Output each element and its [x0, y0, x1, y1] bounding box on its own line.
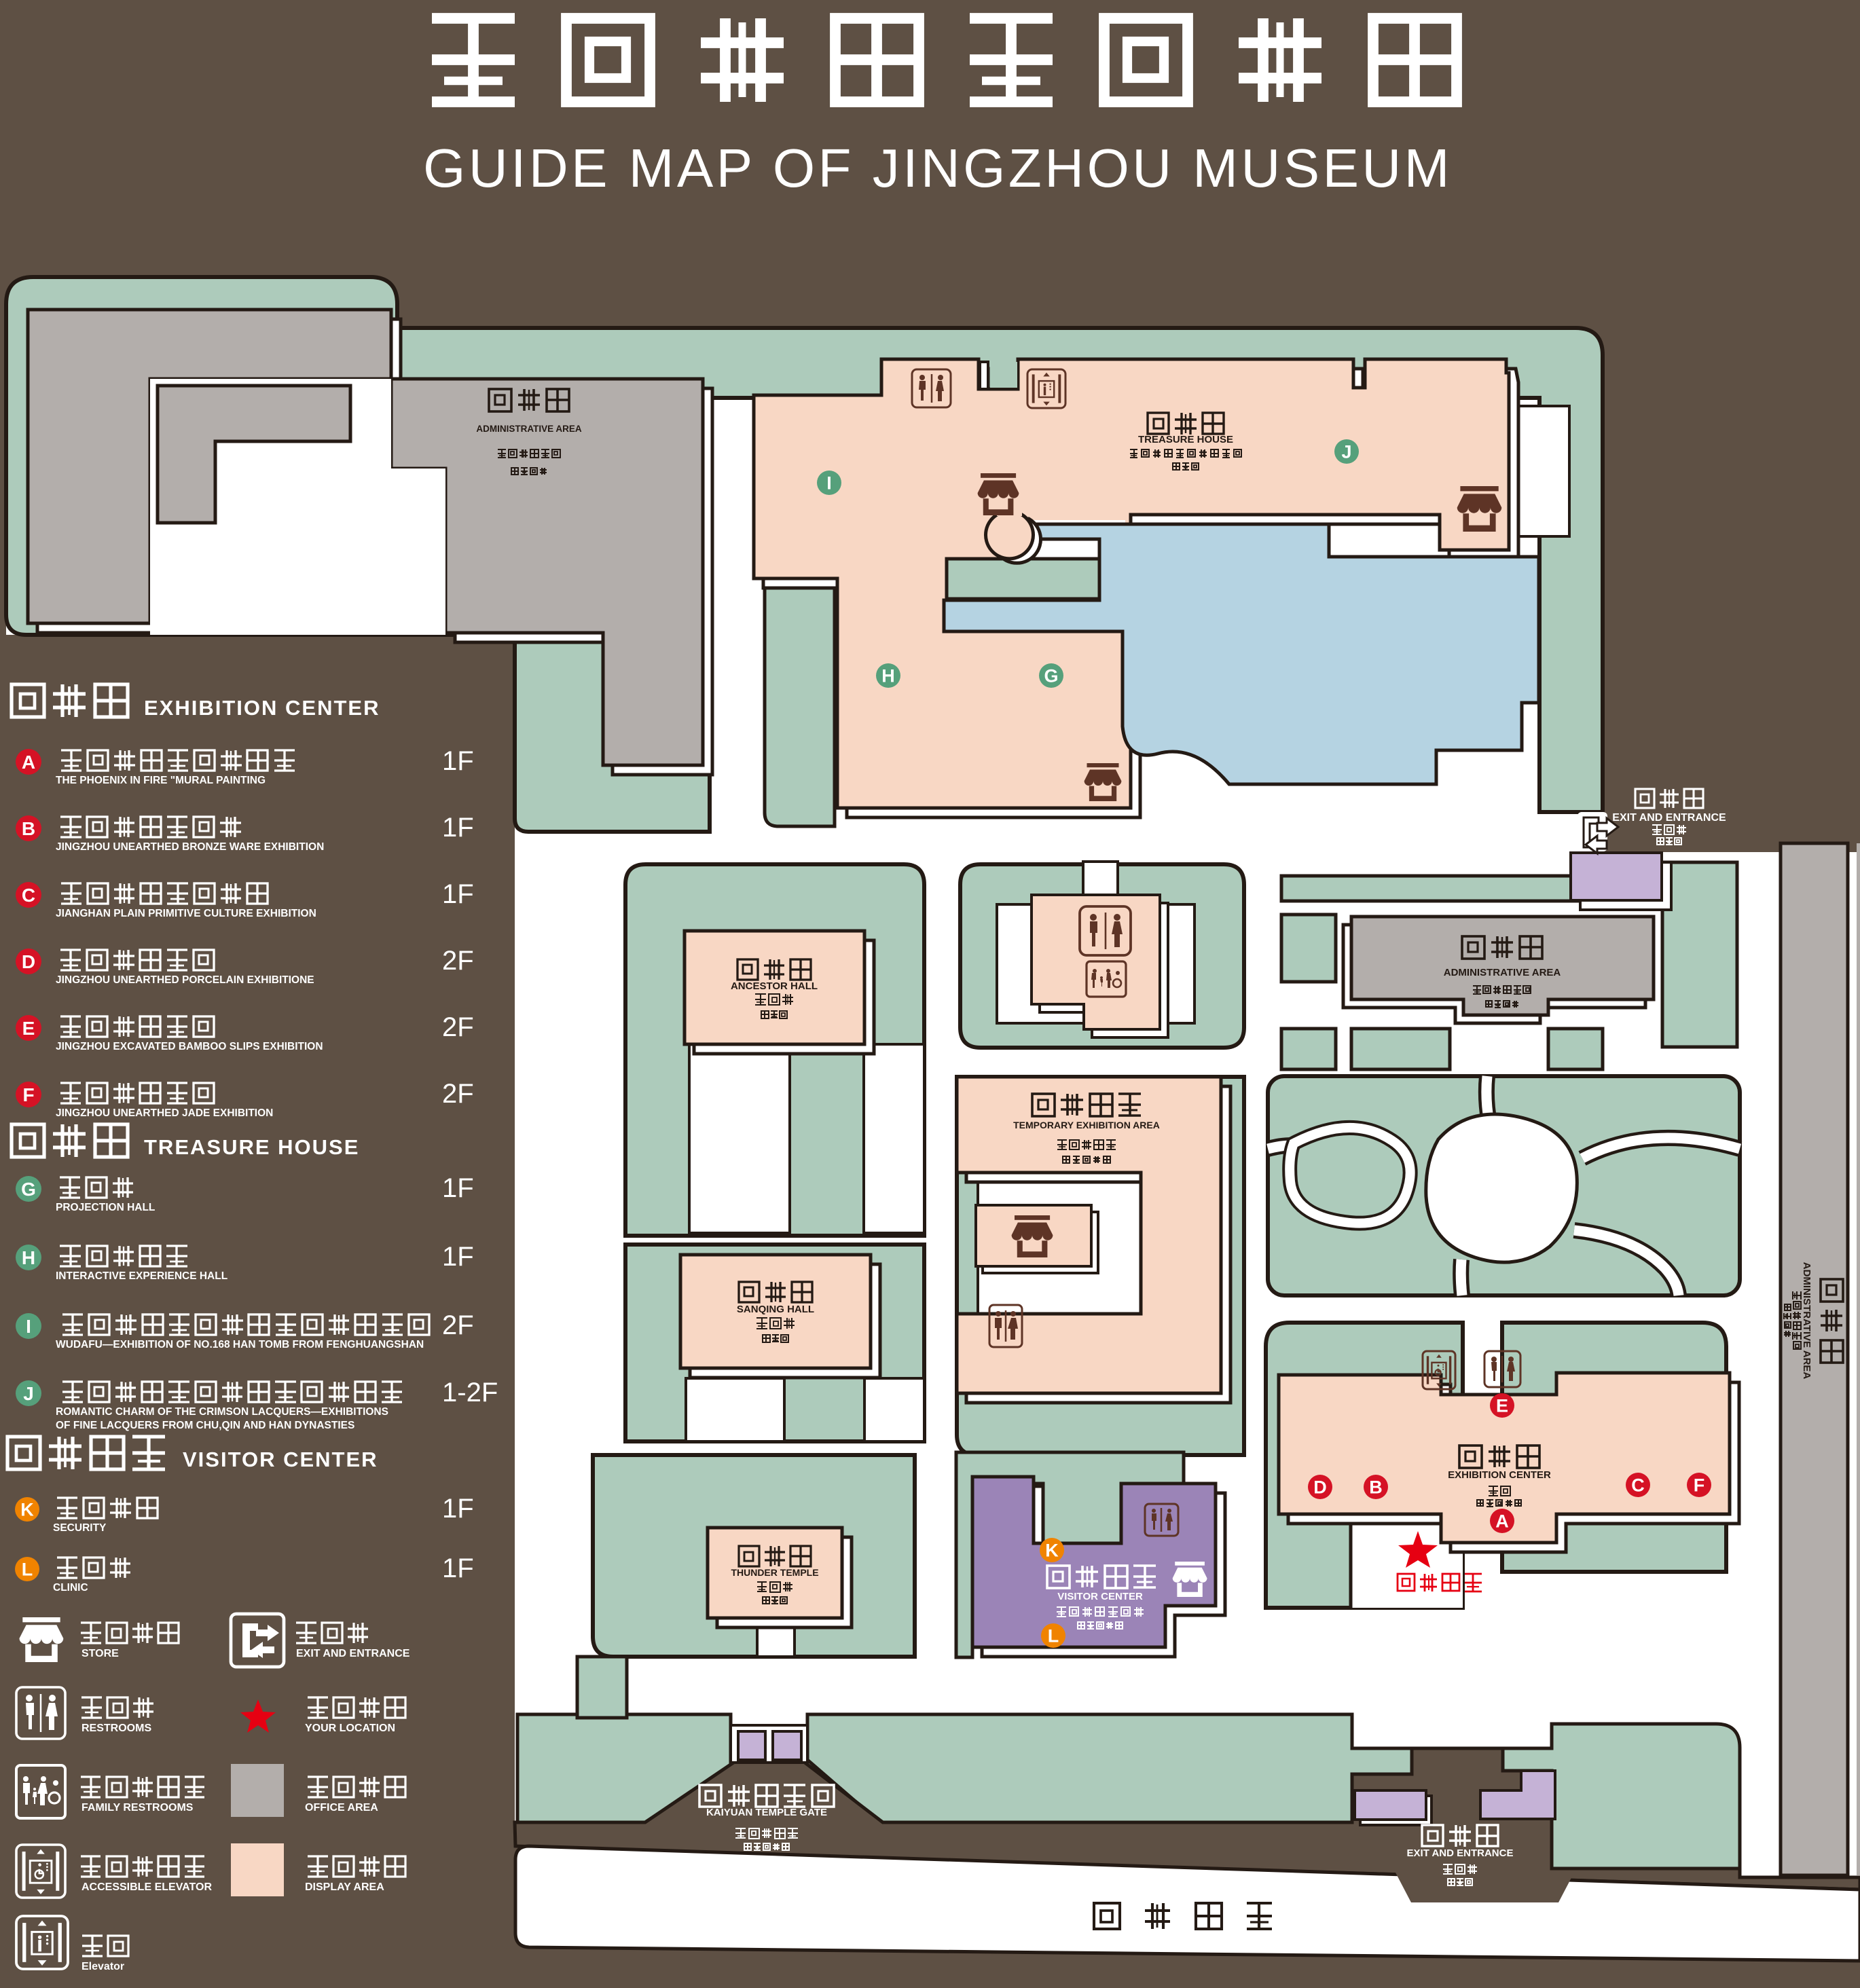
- svg-text:EXIT AND ENTRANCE: EXIT AND ENTRANCE: [296, 1648, 410, 1659]
- svg-text:VISITOR CENTER: VISITOR CENTER: [1057, 1591, 1143, 1602]
- svg-text:1F: 1F: [442, 879, 474, 909]
- svg-text:EXIT AND ENTRANCE: EXIT AND ENTRANCE: [1407, 1847, 1514, 1859]
- svg-text:1F: 1F: [442, 1553, 474, 1583]
- svg-text:VISITOR CENTER: VISITOR CENTER: [183, 1448, 378, 1471]
- svg-text:ADMINISTRATIVE AREA: ADMINISTRATIVE AREA: [1801, 1262, 1812, 1380]
- svg-text:L: L: [22, 1559, 33, 1579]
- svg-text:1F: 1F: [442, 1494, 474, 1524]
- svg-text:Elevator: Elevator: [81, 1961, 124, 1972]
- svg-text:PROJECTION HALL: PROJECTION HALL: [56, 1202, 155, 1213]
- svg-text:2F: 2F: [442, 1310, 474, 1340]
- svg-text:OF FINE LACQUERS FROM CHU,QIN: OF FINE LACQUERS FROM CHU,QIN AND HAN DY…: [56, 1420, 354, 1431]
- svg-text:1F: 1F: [442, 1173, 474, 1203]
- svg-text:YOUR LOCATION: YOUR LOCATION: [305, 1723, 395, 1734]
- svg-text:1F: 1F: [442, 746, 474, 776]
- svg-text:I: I: [26, 1316, 31, 1337]
- svg-text:A: A: [22, 752, 35, 773]
- svg-text:EXIT AND ENTRANCE: EXIT AND ENTRANCE: [1612, 812, 1726, 824]
- svg-text:OFFICE AREA: OFFICE AREA: [305, 1802, 378, 1814]
- svg-text:JINGZHOU UNEARTHED JADE EXHIBI: JINGZHOU UNEARTHED JADE EXHIBITION: [56, 1107, 273, 1119]
- svg-text:2F: 2F: [442, 946, 474, 976]
- svg-text:WUDAFU—EXHIBITION OF NO.168 HA: WUDAFU—EXHIBITION OF NO.168 HAN TOMB FRO…: [56, 1339, 424, 1350]
- svg-text:SECURITY: SECURITY: [53, 1522, 107, 1534]
- svg-text:ROMANTIC CHARM OF THE CRIMSON: ROMANTIC CHARM OF THE CRIMSON LACQUERS—E…: [56, 1406, 388, 1418]
- svg-text:CLINIC: CLINIC: [53, 1582, 88, 1594]
- svg-text:JINGZHOU UNEARTHED PORCELAIN E: JINGZHOU UNEARTHED PORCELAIN EXHIBITIONE: [56, 974, 314, 986]
- svg-text:SANQING HALL: SANQING HALL: [737, 1304, 814, 1315]
- svg-text:E: E: [1496, 1395, 1508, 1416]
- svg-text:I: I: [826, 473, 832, 493]
- svg-text:ADMINISTRATIVE AREA: ADMINISTRATIVE AREA: [1444, 967, 1561, 978]
- svg-text:TREASURE HOUSE: TREASURE HOUSE: [1138, 434, 1233, 445]
- svg-text:TEMPORARY EXHIBITION AREA: TEMPORARY EXHIBITION AREA: [1013, 1120, 1160, 1130]
- svg-text:ANCESTOR HALL: ANCESTOR HALL: [731, 980, 818, 992]
- svg-text:JINGZHOU EXCAVATED BAMBOO SLIP: JINGZHOU EXCAVATED BAMBOO SLIPS EXHIBITI…: [56, 1041, 323, 1052]
- svg-text:1F: 1F: [442, 813, 474, 843]
- svg-text:C: C: [22, 885, 35, 906]
- svg-text:ADMINISTRATIVE AREA: ADMINISTRATIVE AREA: [476, 424, 582, 434]
- svg-text:STORE: STORE: [81, 1648, 119, 1659]
- svg-text:F: F: [1694, 1475, 1705, 1495]
- svg-text:1-2F: 1-2F: [442, 1378, 498, 1407]
- svg-text:D: D: [1313, 1477, 1327, 1497]
- svg-text:K: K: [1045, 1540, 1059, 1560]
- svg-text:JIANGHAN PLAIN PRIMITIVE CULTU: JIANGHAN PLAIN PRIMITIVE CULTURE EXHIBIT…: [56, 908, 316, 919]
- svg-text:L: L: [1048, 1625, 1059, 1646]
- svg-text:D: D: [22, 951, 35, 972]
- svg-text:JINGZHOU UNEARTHED BRONZE WARE: JINGZHOU UNEARTHED BRONZE WARE EXHIBITIO…: [56, 841, 324, 853]
- svg-text:ACCESSIBLE ELEVATOR: ACCESSIBLE ELEVATOR: [81, 1881, 212, 1893]
- svg-text:2F: 2F: [442, 1012, 474, 1042]
- svg-text:EXHIBITION CENTER: EXHIBITION CENTER: [144, 696, 380, 720]
- svg-text:F: F: [22, 1084, 34, 1105]
- svg-text:2F: 2F: [442, 1079, 474, 1109]
- svg-text:J: J: [1341, 441, 1351, 462]
- svg-text:B: B: [22, 818, 35, 839]
- svg-text:TREASURE HOUSE: TREASURE HOUSE: [144, 1135, 359, 1159]
- svg-text:EXHIBITION CENTER: EXHIBITION CENTER: [1448, 1469, 1551, 1481]
- svg-text:FAMILY RESTROOMS: FAMILY RESTROOMS: [81, 1802, 194, 1814]
- svg-text:KAIYUAN TEMPLE GATE: KAIYUAN TEMPLE GATE: [706, 1807, 827, 1818]
- svg-text:G: G: [1044, 665, 1058, 686]
- svg-text:RESTROOMS: RESTROOMS: [81, 1723, 151, 1734]
- svg-text:THE PHOENIX IN FIRE "MURAL PAI: THE PHOENIX IN FIRE "MURAL PAINTING: [56, 775, 266, 786]
- svg-text:G: G: [21, 1179, 36, 1200]
- svg-text:B: B: [1369, 1477, 1383, 1497]
- svg-text:1F: 1F: [442, 1242, 474, 1272]
- svg-text:C: C: [1631, 1475, 1645, 1495]
- svg-text:THUNDER TEMPLE: THUNDER TEMPLE: [731, 1567, 818, 1578]
- svg-text:A: A: [1495, 1511, 1509, 1531]
- svg-text:E: E: [22, 1018, 35, 1039]
- svg-text:INTERACTIVE EXPERIENCE HALL: INTERACTIVE EXPERIENCE HALL: [56, 1270, 227, 1282]
- svg-text:J: J: [23, 1383, 34, 1404]
- svg-text:H: H: [881, 665, 895, 686]
- svg-text:GUIDE MAP OF JINGZHOU MUSEUM: GUIDE MAP OF JINGZHOU MUSEUM: [423, 138, 1453, 198]
- svg-text:DISPLAY AREA: DISPLAY AREA: [305, 1881, 384, 1893]
- svg-text:K: K: [20, 1499, 34, 1520]
- svg-text:H: H: [22, 1247, 35, 1268]
